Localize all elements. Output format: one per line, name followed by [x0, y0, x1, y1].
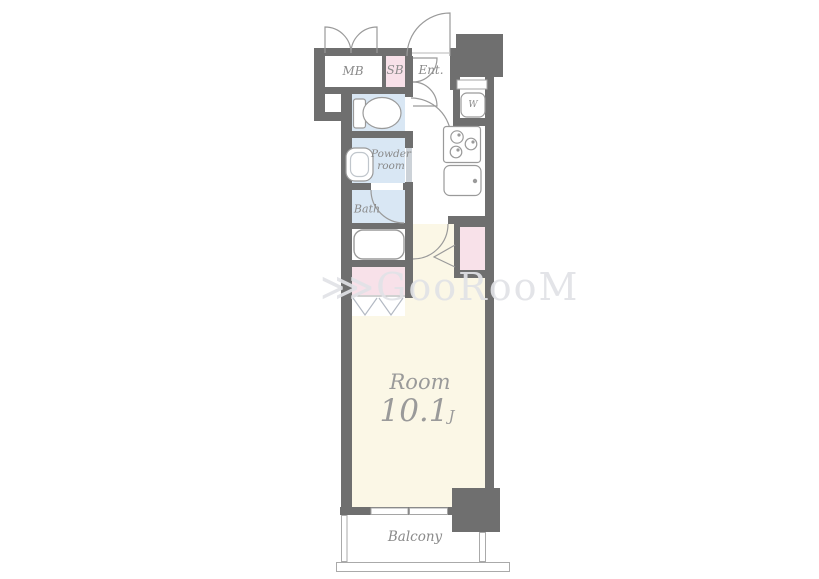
- wall-central-lower: [405, 182, 413, 298]
- wall-central-upper: [405, 56, 413, 97]
- pillar-top-right: [456, 34, 503, 77]
- wall-powder-bottom-left: [341, 183, 371, 190]
- pillar-bottom-right: [452, 488, 500, 532]
- balcony-rail-right: [480, 533, 486, 562]
- wall-bath-bottom: [341, 223, 413, 229]
- room-sb-label: SB: [386, 64, 403, 78]
- balcony-label: Balcony: [388, 530, 442, 546]
- entrance-label: Ent.: [418, 64, 443, 78]
- wall-top: [314, 48, 412, 56]
- entrance-door-arc: [407, 13, 450, 56]
- pipe-niche: [325, 94, 341, 112]
- floor-plan: MB SB Ent. W Powder room Bath Room 10.1J…: [0, 0, 819, 579]
- wall-laundry-bottom: [453, 118, 494, 126]
- main-room-size: 10.1J: [379, 394, 454, 430]
- room-mb-label: MB: [342, 65, 363, 79]
- closet-right-floor: [460, 227, 485, 270]
- closet-left-floor: [352, 267, 405, 295]
- balcony-rail-bottom: [337, 563, 510, 572]
- powder-room-label-line1: Powder: [371, 148, 411, 160]
- powder-room-label-line2: room: [377, 160, 405, 172]
- wall-room-bottom: [340, 507, 455, 515]
- main-room-area: 10.1: [379, 393, 448, 429]
- main-room-unit: J: [449, 407, 455, 425]
- bath-label: Bath: [354, 204, 380, 217]
- toilet-floor: [352, 94, 405, 131]
- wall-left-upper: [314, 48, 325, 121]
- closet-left-front-strip: [352, 295, 405, 316]
- wall-mb-sb-divider: [382, 56, 386, 87]
- main-room-label: Room: [389, 370, 450, 394]
- wall-tub-bottom: [341, 260, 413, 267]
- powder-room-label: Powder room: [371, 148, 411, 172]
- wall-powder-bottom-right: [403, 183, 413, 190]
- wall-toilet-bottom: [341, 131, 413, 138]
- window-slot: [457, 80, 487, 89]
- wall-right-outer: [485, 77, 494, 488]
- wall-mb-bottom: [314, 87, 412, 94]
- laundry-label: W: [468, 100, 477, 110]
- wall-left-main: [341, 87, 352, 515]
- balcony-rail-left: [342, 516, 348, 562]
- tub-area-floor: [352, 229, 405, 260]
